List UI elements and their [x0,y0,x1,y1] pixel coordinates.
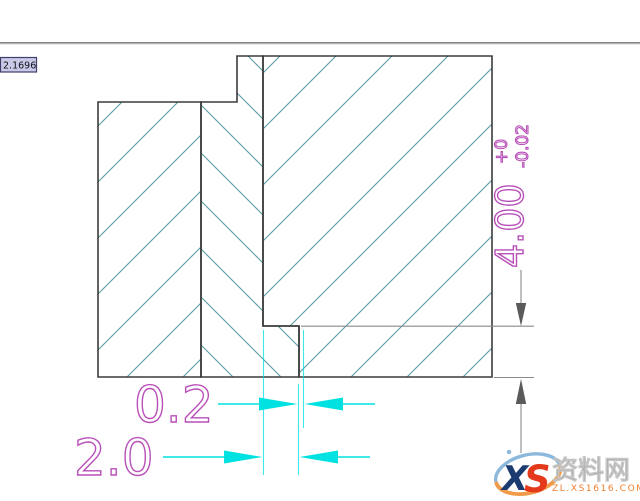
left-block-section [98,102,201,377]
watermark-site-url: ZL.XS1616.COM [552,484,640,494]
dim-depth-value: 4.00 [488,183,532,268]
watermark-logo-s: S [524,458,551,501]
watermark-site-name: 资料网 [552,456,630,486]
top-divider [0,42,640,45]
cad-application-view: 2.1696 4.00 +0 -0.02 0.2 [0,0,640,501]
dim-step-arrow-left [305,398,344,411]
dim-step-value: 0.2 [134,376,214,434]
dim-depth-arrow-up [516,379,526,404]
dim-width-arrow-left [300,451,339,464]
dim-depth-tol-lower: -0.02 [513,124,533,168]
tooltip-value: 2.1696 [3,61,36,72]
dim-width-arrow-right [224,451,263,464]
dim-step-annotation: 0.2 [134,376,375,434]
dim-width-value: 2.0 [74,429,154,487]
coordinate-tooltip: 2.1696 [1,58,37,73]
logo-sparkle-icon [507,450,511,454]
dim-width-annotation: 2.0 [74,429,370,487]
dim-step-arrow-right [259,398,298,411]
drawing-geometry [98,56,492,377]
dim-depth-arrow-down [516,303,526,326]
cad-canvas[interactable]: 2.1696 4.00 +0 -0.02 0.2 [0,0,640,501]
dim-depth-tol-upper: +0 [492,139,512,164]
watermark: X S 资料网 ZL.XS1616.COM [491,448,640,501]
